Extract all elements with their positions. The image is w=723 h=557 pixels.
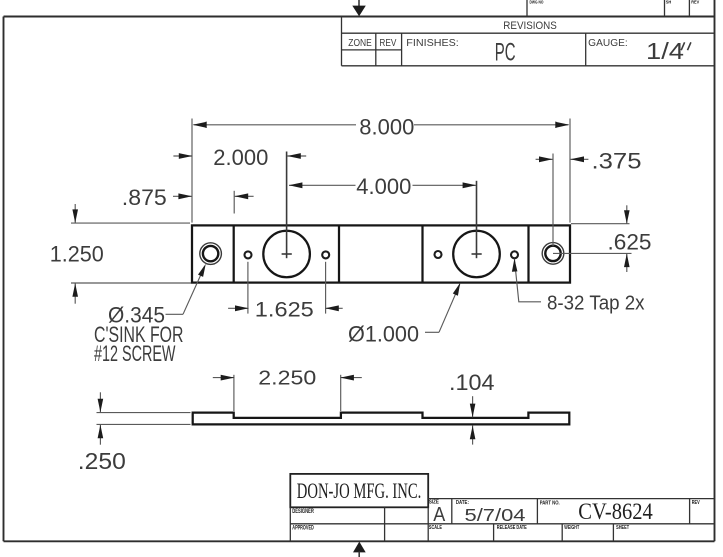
svg-text:8-32 Tap 2x: 8-32 Tap 2x [547,293,645,315]
svg-text:PC: PC [495,38,516,66]
svg-text:.625: .625 [608,229,652,254]
svg-text:4.000: 4.000 [356,174,411,199]
svg-text:CV-8624: CV-8624 [578,499,653,525]
svg-text:ZONE: ZONE [348,38,372,49]
svg-text:.875: .875 [122,185,167,210]
svg-text:GAUGE:: GAUGE: [588,38,628,49]
svg-text:1.625: 1.625 [255,298,314,321]
svg-text:RELEASE DATE: RELEASE DATE [497,525,528,531]
svg-text:DWG NO: DWG NO [530,0,544,4]
svg-text:Ø1.000: Ø1.000 [348,321,419,346]
svg-text:SH: SH [666,0,672,4]
svg-text:2.000: 2.000 [213,145,268,170]
svg-text:REV: REV [379,38,396,49]
svg-text:2.250: 2.250 [258,368,316,390]
svg-text:1/4: 1/4 [646,38,684,64]
svg-text:5/7/04: 5/7/04 [465,505,526,525]
svg-text:8.000: 8.000 [359,115,414,140]
svg-text:REV: REV [692,500,701,506]
svg-text:.375: .375 [592,149,642,174]
svg-text:.250: .250 [78,448,126,474]
svg-text:PART NO.: PART NO. [540,501,561,507]
svg-text:DESIGNER: DESIGNER [292,509,314,515]
svg-text:.104: .104 [449,370,495,395]
svg-text:A: A [433,504,446,526]
svg-text:REV: REV [691,0,700,4]
svg-text:REVISIONS: REVISIONS [503,20,557,32]
svg-text:#12 SCREW: #12 SCREW [94,341,176,366]
svg-text:APPROVED: APPROVED [292,526,314,532]
svg-text:FINISHES:: FINISHES: [406,38,459,49]
svg-text:SHEET: SHEET [616,525,629,531]
svg-text:DON-JO MFG. INC.: DON-JO MFG. INC. [297,478,422,503]
svg-text:WEIGHT: WEIGHT [564,525,579,531]
svg-text:1.250: 1.250 [50,241,104,266]
